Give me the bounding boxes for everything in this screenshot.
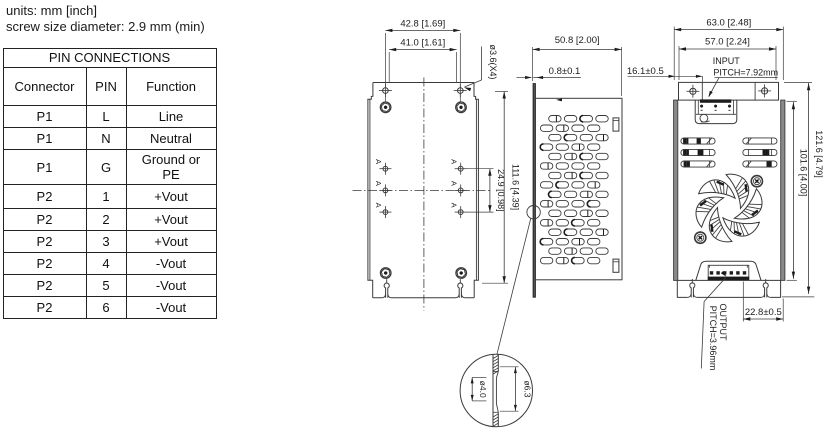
svg-text:A: A bbox=[374, 203, 383, 208]
svg-text:42.8 [1.69]: 42.8 [1.69] bbox=[400, 19, 445, 30]
svg-text:INPUT: INPUT bbox=[713, 56, 741, 66]
svg-text:PITCH=7.92mm: PITCH=7.92mm bbox=[713, 68, 778, 78]
svg-text:16.1±0.5: 16.1±0.5 bbox=[627, 66, 664, 77]
svg-text:41.0 [1.61]: 41.0 [1.61] bbox=[400, 38, 445, 49]
svg-text:121.6 [4.79]: 121.6 [4.79] bbox=[814, 130, 824, 178]
svg-text:OUTPUT: OUTPUT bbox=[718, 304, 728, 342]
svg-text:111.6 [4.39]: 111.6 [4.39] bbox=[510, 164, 520, 210]
svg-text:A: A bbox=[449, 159, 458, 164]
svg-text:A: A bbox=[449, 203, 458, 208]
svg-text:22.8±0.5: 22.8±0.5 bbox=[745, 307, 782, 318]
svg-text:63.0 [2.48]: 63.0 [2.48] bbox=[706, 18, 751, 29]
svg-text:0.8±0.1: 0.8±0.1 bbox=[549, 66, 581, 77]
svg-text:A: A bbox=[374, 159, 383, 164]
svg-text:50.8 [2.00]: 50.8 [2.00] bbox=[555, 35, 600, 46]
svg-text:ø4.0: ø4.0 bbox=[478, 381, 488, 398]
svg-text:PITCH=3.96mm: PITCH=3.96mm bbox=[708, 306, 718, 371]
svg-text:101.6 [4.00]: 101.6 [4.00] bbox=[799, 149, 809, 197]
svg-text:ø3.6(X4): ø3.6(X4) bbox=[488, 44, 498, 79]
svg-text:ø6.3: ø6.3 bbox=[522, 380, 532, 397]
svg-text:A: A bbox=[374, 181, 383, 186]
svg-text:57.0 [2.24]: 57.0 [2.24] bbox=[705, 37, 750, 48]
svg-text:A: A bbox=[449, 181, 458, 186]
